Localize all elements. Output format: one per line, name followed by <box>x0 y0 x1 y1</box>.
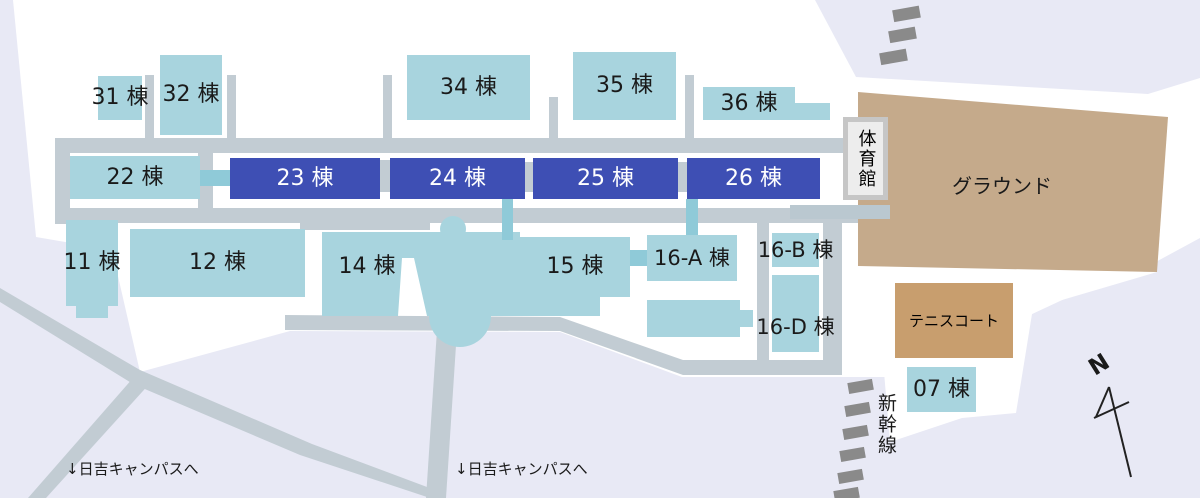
building-34: 34 棟 <box>407 55 530 120</box>
gymnasium-label: 体育館 <box>853 129 879 189</box>
building-24-label: 24 棟 <box>429 168 486 190</box>
building-11: 11 棟 <box>66 220 118 306</box>
building-32-label: 32 棟 <box>163 84 220 106</box>
building-23: 23 棟 <box>230 158 380 199</box>
tennis-court-label: テニスコート <box>909 310 999 331</box>
building-11-label: 11 棟 <box>64 252 121 274</box>
background-top-right <box>815 0 1200 94</box>
road-gap-connector-3 <box>678 162 687 192</box>
connector-26-16a <box>686 199 698 235</box>
building-11-annex <box>76 306 108 318</box>
building-36-label: 36 棟 <box>721 93 778 115</box>
building-31: 31 棟 <box>98 76 142 120</box>
building-26-label: 26 棟 <box>725 168 782 190</box>
campus-map: 31 棟 32 棟 34 棟 35 棟 36 棟 22 棟 23 棟 24 棟 … <box>0 0 1200 498</box>
building-35: 35 棟 <box>573 52 676 120</box>
building-15-annex <box>520 297 600 316</box>
building-23-label: 23 棟 <box>277 168 334 190</box>
building-07-label: 07 棟 <box>913 379 970 401</box>
building-unlabeled-annex <box>740 310 753 327</box>
building-35-label: 35 棟 <box>596 75 653 97</box>
road-top <box>62 138 845 153</box>
connector-24-14 <box>502 199 513 240</box>
building-36: 36 棟 <box>703 87 795 120</box>
road-gap-connector-1 <box>379 160 390 192</box>
building-34-label: 34 棟 <box>440 77 497 99</box>
gymnasium: 体育館 <box>843 117 888 200</box>
ground-label: グラウンド <box>952 176 1052 196</box>
building-32: 32 棟 <box>160 55 222 135</box>
road-stub-3 <box>383 75 392 140</box>
building-15-label: 15 棟 <box>547 256 604 278</box>
road-stub-5 <box>685 75 694 140</box>
hiyoshi-campus-label-2: ↓日吉キャンパスへ <box>455 462 588 477</box>
road-stub-2 <box>227 75 236 140</box>
building-22-label: 22 棟 <box>107 167 164 189</box>
building-15: 15 棟 <box>520 237 630 297</box>
building-24: 24 棟 <box>390 158 525 199</box>
road-middle-bump <box>300 214 430 230</box>
tennis-court: テニスコート <box>895 283 1013 358</box>
connector-22-23 <box>198 170 230 186</box>
building-16b: 16-B 棟 <box>772 233 819 267</box>
building-16a: 16-A 棟 <box>647 235 737 281</box>
shinkansen-label: 新幹線 <box>876 393 895 456</box>
building-12: 12 棟 <box>130 229 305 297</box>
connector-15-16a <box>628 250 647 266</box>
building-26: 26 棟 <box>687 158 820 199</box>
building-16d: 16-D 棟 <box>772 275 819 352</box>
building-16a-label: 16-A 棟 <box>654 248 730 269</box>
building-07: 07 棟 <box>907 367 976 412</box>
building-22: 22 棟 <box>70 156 200 199</box>
building-14-label: 14 棟 <box>322 256 412 278</box>
road-middle <box>55 208 887 223</box>
road-stub-4 <box>549 97 558 140</box>
road-below-gym <box>790 205 890 219</box>
building-16d-label: 16-D 棟 <box>756 317 834 338</box>
building-16b-label: 16-B 棟 <box>758 240 834 261</box>
building-25: 25 棟 <box>533 158 678 199</box>
building-12-label: 12 棟 <box>189 252 246 274</box>
road-gap-connector-2 <box>524 162 533 192</box>
hiyoshi-campus-label-1: ↓日吉キャンパスへ <box>66 462 199 477</box>
building-36-annex <box>795 103 830 120</box>
building-31-label: 31 棟 <box>92 87 149 109</box>
building-unlabeled <box>647 300 740 337</box>
building-25-label: 25 棟 <box>577 168 634 190</box>
